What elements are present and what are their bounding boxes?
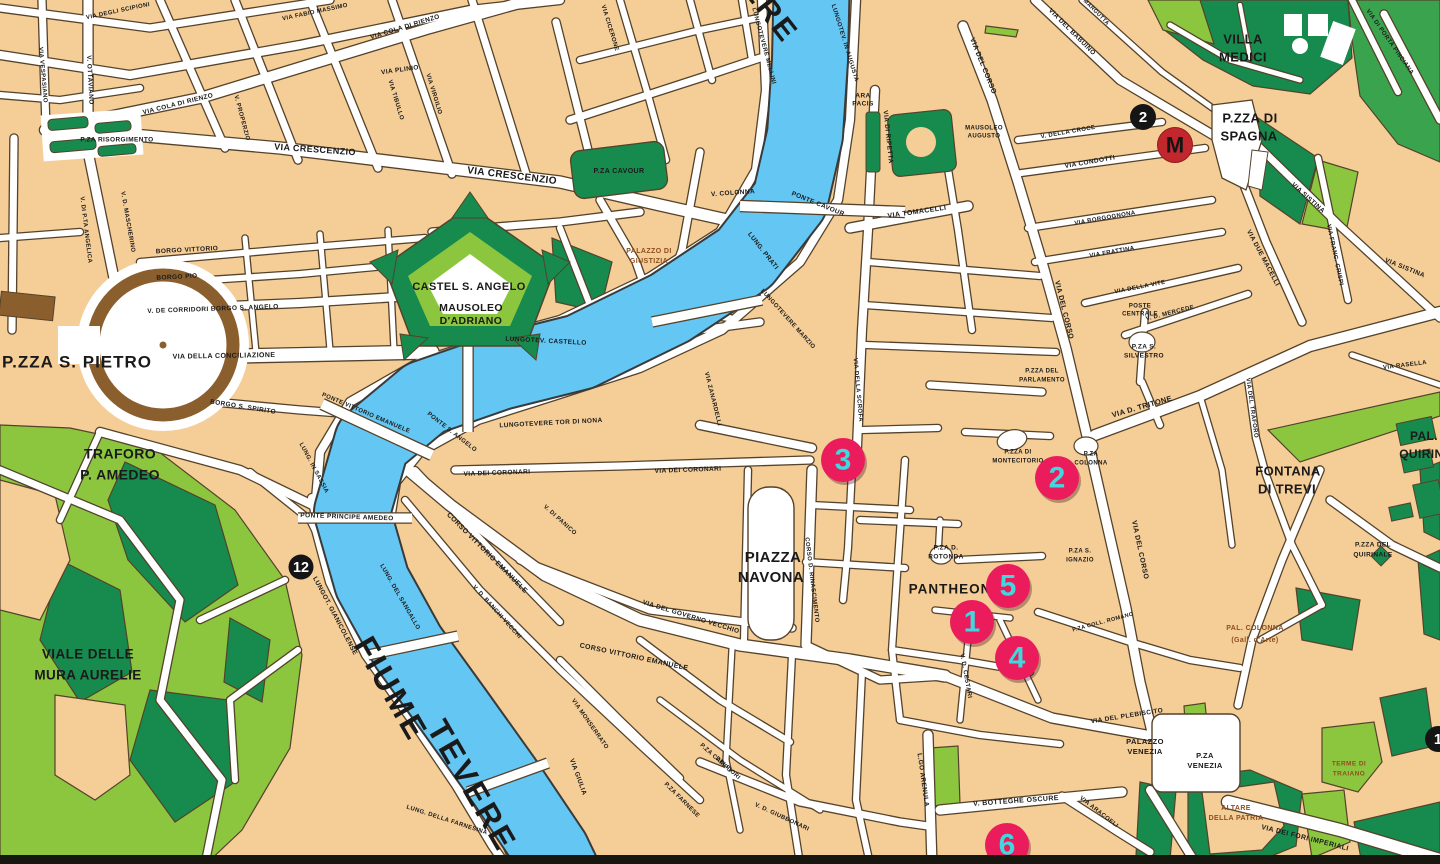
map-label-augusto: AUGUSTO bbox=[968, 134, 1001, 140]
map-canvas: P.ZZA S. PIETROTRAFOROP. AMEDEOVIALE DEL… bbox=[0, 0, 1440, 864]
map-label-p-zza-di: P.ZZA DI bbox=[1222, 110, 1277, 125]
stop-marker-2[interactable]: 2 bbox=[1130, 104, 1156, 130]
map-label-p-zza-s-pietro: P.ZZA S. PIETRO bbox=[2, 352, 152, 371]
map-label-p-zza-del: P.ZZA DEL bbox=[1355, 542, 1391, 549]
map-label-venezia: VENEZIA bbox=[1127, 747, 1162, 756]
metro-station-marker[interactable]: M bbox=[1158, 128, 1193, 163]
map-label-viale-delle: VIALE DELLE bbox=[42, 647, 134, 662]
basilica-block bbox=[0, 291, 55, 321]
sight-marker-number: 3 bbox=[835, 443, 852, 476]
sight-marker-number: 1 bbox=[964, 605, 981, 638]
map-label-quirinale: QUIRINALE bbox=[1353, 552, 1393, 559]
map-label-fontana: FONTANA bbox=[1255, 463, 1321, 478]
map-label-medici: MEDICI bbox=[1219, 49, 1267, 64]
map-label-p-zza-del: P.ZZA DEL bbox=[1025, 369, 1059, 375]
map-label-palazzo: PALAZZO bbox=[1126, 737, 1164, 746]
map-label-palazzo-di: PALAZZO DI bbox=[626, 248, 671, 255]
sight-marker-number: 2 bbox=[1049, 461, 1066, 494]
map-label-gall-d-arte: (Gall. d'Arte) bbox=[1231, 637, 1278, 644]
map-label-ignazio: IGNAZIO bbox=[1066, 558, 1094, 564]
map-label-castel-s-angelo: CASTEL S. ANGELO bbox=[412, 281, 525, 293]
map-label-p-za-s: P.ZA S. bbox=[1069, 549, 1092, 555]
metro-marker-letter: M bbox=[1166, 132, 1184, 157]
villa-medici-fountain bbox=[1292, 38, 1308, 54]
mausoleo-augusto-core bbox=[906, 127, 936, 157]
map-label-venezia: VENEZIA bbox=[1187, 761, 1222, 770]
map-label-p-za-cavour: P.ZA CAVOUR bbox=[594, 168, 645, 175]
map-label-quirinale: QUIRINALE bbox=[1399, 447, 1440, 461]
map-bottom-border bbox=[0, 855, 1440, 864]
map-label-poste: POSTE bbox=[1129, 304, 1151, 310]
map-border bbox=[0, 855, 1440, 864]
map-label-p-za: P.ZA bbox=[1196, 751, 1214, 760]
map-label-piazza: PIAZZA bbox=[745, 549, 802, 566]
stop-marker-number: 1 bbox=[1434, 731, 1440, 748]
villa-medici-building bbox=[1284, 14, 1302, 36]
map-label-colonna: COLONNA bbox=[1074, 461, 1107, 467]
villa-medici-building bbox=[1308, 14, 1328, 36]
map-label-d-adriano: D'ADRIANO bbox=[440, 315, 503, 327]
sight-marker-number: 5 bbox=[1000, 569, 1017, 602]
stop-marker-number: 2 bbox=[1139, 109, 1147, 126]
map-label-rotonda: ROTONDA bbox=[928, 554, 964, 561]
map-label-p-za: P.ZA bbox=[1084, 452, 1099, 458]
street bbox=[862, 428, 938, 430]
map-label-traiano: TRAIANO bbox=[1333, 771, 1365, 778]
map-label-giustizia: GIUSTIZIA bbox=[630, 258, 668, 265]
map-label-spagna: SPAGNA bbox=[1220, 128, 1277, 143]
map-label-mura-aurelie: MURA AURELIE bbox=[34, 668, 141, 683]
map-label-mausoleo: MAUSOLEO bbox=[439, 302, 503, 314]
map-label-p-amedeo: P. AMEDEO bbox=[80, 467, 160, 483]
map-label-della-patria: DELLA PATRIA bbox=[1209, 815, 1264, 822]
map-label-parlamento: PARLAMENTO bbox=[1019, 378, 1065, 384]
map-label-villa: VILLA bbox=[1223, 31, 1263, 46]
street bbox=[860, 520, 958, 524]
map-label-navona: NAVONA bbox=[738, 569, 804, 586]
map-label-pal: PAL. bbox=[1410, 429, 1438, 443]
stop-marker-number: 12 bbox=[293, 560, 309, 576]
map-label-mausoleo: MAUSOLEO bbox=[965, 126, 1003, 132]
map-label-pacis: PACIS bbox=[852, 101, 874, 108]
street bbox=[958, 556, 1042, 560]
map-label-montecitorio: MONTECITORIO bbox=[992, 459, 1043, 465]
map-label-pantheon: PANTHEON bbox=[909, 582, 992, 597]
map-label-p-za-risorgimento: P.ZA RISORGIMENTO bbox=[80, 137, 153, 144]
map-label-p-za-s: P.ZA S. bbox=[1132, 344, 1156, 351]
rome-city-map: P.ZZA S. PIETROTRAFOROP. AMEDEOVIALE DEL… bbox=[0, 0, 1440, 864]
map-label-terme-di: TERME DI bbox=[1332, 761, 1366, 768]
obelisk-dot bbox=[160, 342, 167, 349]
map-label-pal-colonna: PAL. COLONNA bbox=[1226, 625, 1284, 632]
map-label-p-zza-di: P.ZZA DI bbox=[1004, 450, 1031, 456]
map-label-di-trevi: DI TREVI bbox=[1258, 481, 1316, 496]
map-label-silvestro: SILVESTRO bbox=[1124, 353, 1164, 360]
map-label-p-za-d: P.ZA D. bbox=[934, 545, 959, 552]
map-label-traforo: TRAFORO bbox=[84, 446, 156, 462]
stop-marker-12[interactable]: 12 bbox=[289, 555, 314, 580]
map-label-ara: ARA bbox=[855, 93, 870, 100]
sight-marker-number: 4 bbox=[1009, 641, 1026, 674]
map-label-altare: ALTARE bbox=[1221, 805, 1251, 812]
ara-pacis bbox=[866, 112, 880, 172]
